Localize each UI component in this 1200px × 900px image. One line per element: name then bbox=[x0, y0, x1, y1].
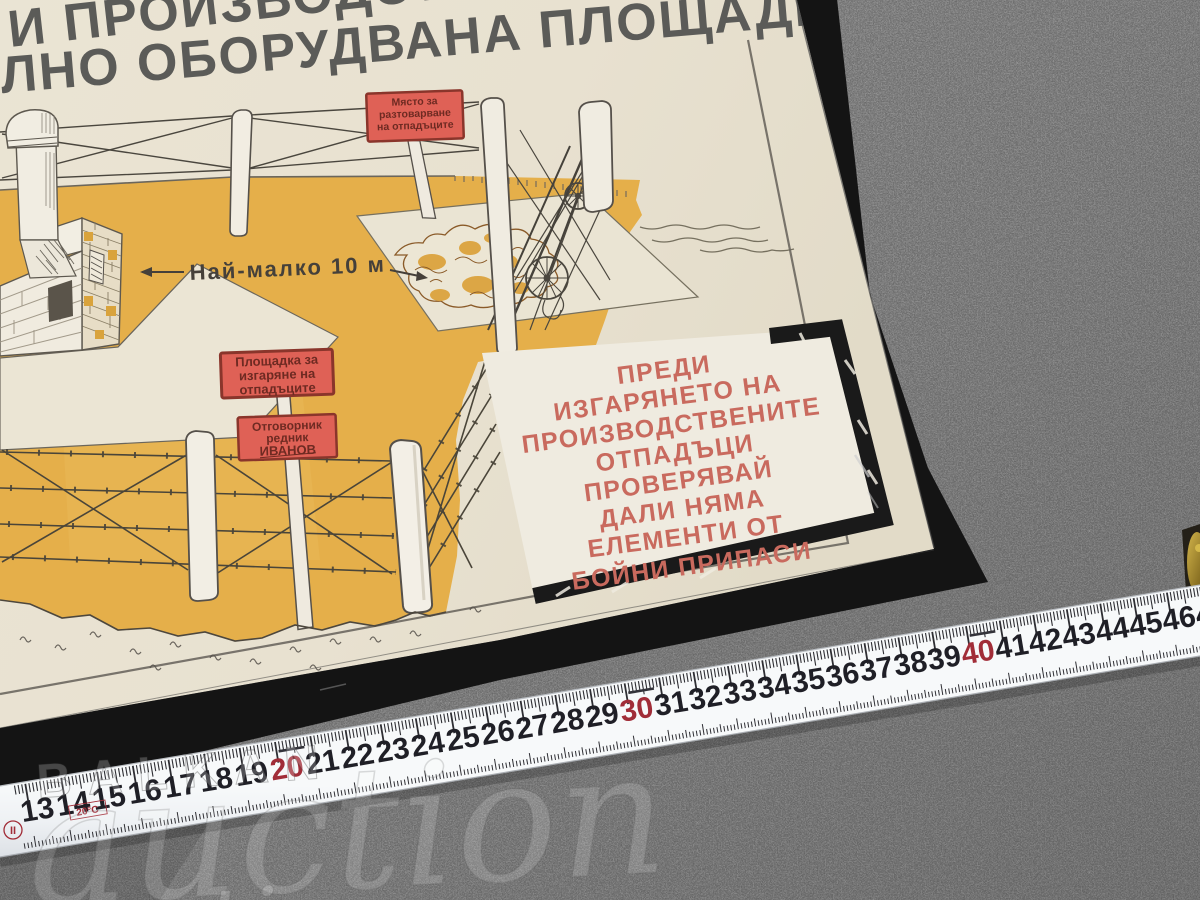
burning-sign: Площадка за изгаряне на отпадъците bbox=[220, 349, 334, 398]
watermark-auction-2: auction bbox=[14, 865, 410, 900]
gate-post-right bbox=[579, 101, 613, 212]
gate-wheel-large bbox=[526, 257, 568, 299]
ruler-number: 41 bbox=[993, 628, 1031, 666]
ruler-number: 37 bbox=[857, 650, 895, 688]
ruler-number: 43 bbox=[1060, 617, 1098, 655]
svg-text:II: II bbox=[10, 825, 16, 837]
ruler-number: 39 bbox=[925, 639, 963, 677]
ruler-number: 45 bbox=[1127, 605, 1165, 643]
responsible-sign: Отговорник редник ИВАНОВ bbox=[238, 414, 337, 460]
ruler-number: 44 bbox=[1093, 611, 1132, 649]
ruler-number: 33 bbox=[721, 673, 759, 711]
ruler-number: 32 bbox=[686, 679, 724, 717]
vent-grille bbox=[89, 250, 104, 284]
sign-text: отпадъците bbox=[239, 380, 316, 398]
ruler-number: 38 bbox=[891, 645, 929, 683]
ruler-number: 35 bbox=[789, 662, 827, 700]
ruler-number: 34 bbox=[755, 668, 794, 706]
photo-scene: И ПРОИЗВОДСТВ ЛНО ОБОРУДВАНА ПЛОЩАДК bbox=[0, 0, 1200, 900]
sign-text: ИВАНОВ bbox=[259, 442, 316, 459]
ruler-number: 36 bbox=[823, 656, 861, 694]
ruler-number: 46 bbox=[1160, 600, 1198, 638]
ruler-number: 40 bbox=[959, 633, 997, 671]
brick-wall bbox=[82, 218, 122, 350]
fence-post-mid bbox=[186, 431, 218, 601]
ruler-number: 42 bbox=[1026, 622, 1064, 660]
watermark: BALKAN auction auction bbox=[14, 715, 672, 900]
